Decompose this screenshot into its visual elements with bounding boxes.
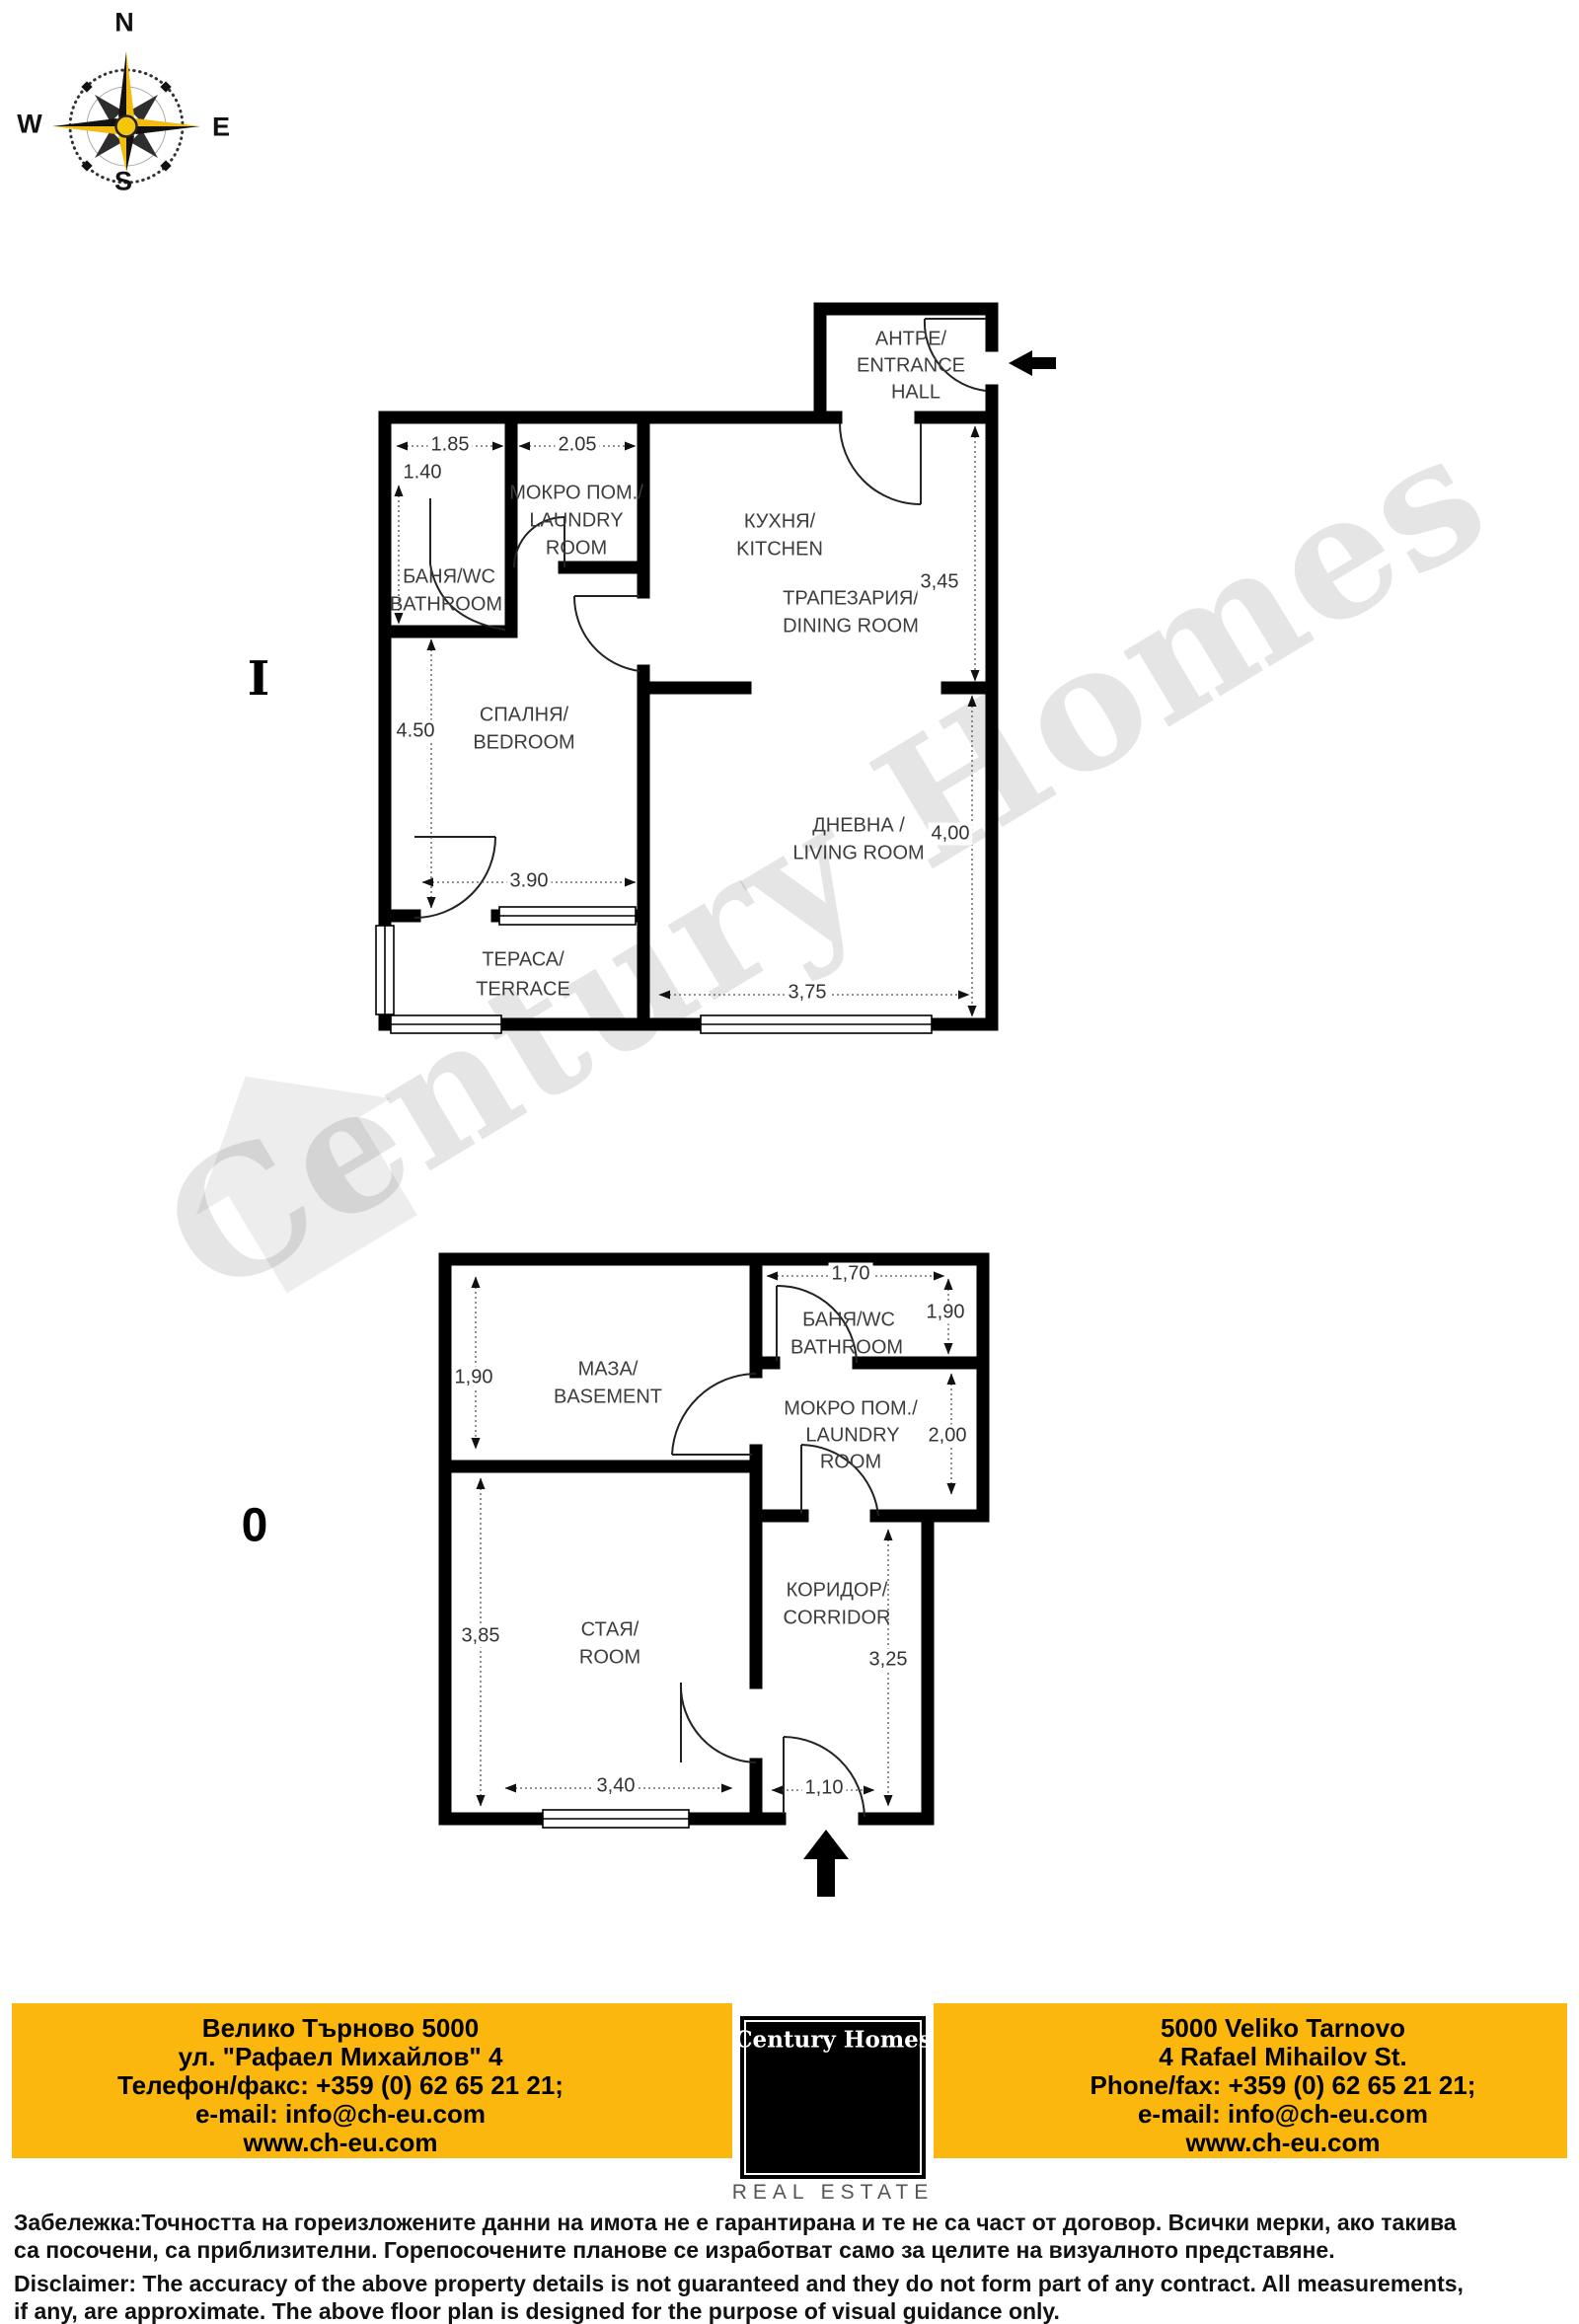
footer-address-bg: Велико Търново 5000 ул. "Рафаел Михайлов… xyxy=(25,2014,656,2157)
room-label-laundry0: ROOM xyxy=(820,1452,881,1474)
footer-website-bg: www.ch-eu.com xyxy=(25,2129,656,2157)
compass-w-label: W xyxy=(17,110,41,140)
dim-bedroom-width: 3.90 xyxy=(507,870,552,893)
footer-phone-en: Phone/fax: +359 (0) 62 65 21 21; xyxy=(1036,2071,1530,2100)
room-label-bathroom0: BATHROOM xyxy=(790,1337,903,1360)
plan1-windows xyxy=(376,907,932,1033)
dim-basement-height: 1,90 xyxy=(452,1367,496,1389)
plan1-walls xyxy=(385,309,992,1024)
footer-phone-bg: Телефон/факс: +359 (0) 62 65 21 21; xyxy=(25,2071,656,2100)
room-label-corridor: КОРИДОР/ xyxy=(787,1580,888,1603)
room-label-terrace: ТЕРАСА/ xyxy=(482,949,564,972)
footer-city-bg: Велико Търново 5000 xyxy=(25,2014,656,2043)
room-label-laundry0: LAUNDRY xyxy=(805,1425,899,1448)
room-label-entrance: HALL xyxy=(891,382,940,405)
plan0-windows xyxy=(543,1810,689,1828)
dim-laundry-width: 2.05 xyxy=(556,434,600,457)
room-label-terrace: TERRACE xyxy=(476,979,570,1002)
compass-n-label: N xyxy=(114,8,134,38)
floor-label-ground: 0 xyxy=(242,1499,268,1553)
room-label-kitchen: КУХНЯ/ xyxy=(744,511,815,534)
dim-entry-width: 1,10 xyxy=(802,1777,847,1800)
room-label-laundry: МОКРО ПОМ./ xyxy=(509,483,643,505)
disclaimer-en-line1: Disclaimer: The accuracy of the above pr… xyxy=(14,2270,1464,2297)
logo-subtitle: REAL ESTATE xyxy=(732,2181,934,2205)
footer-address-en: 5000 Veliko Tarnovo 4 Rafael Mihailov St… xyxy=(1036,2014,1530,2157)
logo-title: Century Homes xyxy=(734,2027,932,2054)
room-label-basement: МАЗА/ xyxy=(578,1359,639,1382)
dim-bathroom0-width: 1,70 xyxy=(829,1263,873,1286)
room-label-bathroom0: БАНЯ/WC xyxy=(802,1310,895,1332)
dim-kitchen-height: 3,45 xyxy=(918,571,962,594)
dim-room-width: 3,40 xyxy=(594,1775,639,1798)
room-label-room: ROOM xyxy=(579,1647,640,1670)
room-label-entrance: ENTRANCE xyxy=(857,355,965,378)
room-label-entrance: АНТРЕ/ xyxy=(875,329,946,351)
dim-room-height: 3,85 xyxy=(459,1625,503,1648)
dim-bathroom0-height: 1,90 xyxy=(924,1302,968,1324)
room-label-bedroom: СПАЛНЯ/ xyxy=(480,705,568,727)
compass-cardinal-points xyxy=(52,51,200,172)
floor-label-first: I xyxy=(248,651,269,707)
dim-bathroom-height: 1.40 xyxy=(401,462,445,485)
entrance-arrow-icon xyxy=(1009,350,1056,376)
footer-street-en: 4 Rafael Mihailov St. xyxy=(1036,2043,1530,2071)
room-label-living: ДНЕВНА / xyxy=(812,815,905,838)
room-label-kitchen: KITCHEN xyxy=(736,539,823,562)
room-label-laundry: LAUNDRY xyxy=(529,510,623,533)
room-label-laundry0: МОКРО ПОМ./ xyxy=(784,1398,918,1421)
room-label-room: СТАЯ/ xyxy=(581,1619,639,1642)
dim-bedroom-height: 4.50 xyxy=(394,720,438,743)
room-label-bathroom1: BATHROOM xyxy=(390,594,502,617)
dim-corridor-height: 3,25 xyxy=(866,1649,911,1672)
room-label-bedroom: BEDROOM xyxy=(473,732,574,755)
disclaimer-bulgarian: Забележка:Точността на гореизложените да… xyxy=(14,2209,1457,2264)
century-homes-logo: Century Homes xyxy=(740,2016,926,2179)
room-label-laundry: ROOM xyxy=(546,538,607,561)
disclaimer-en-line2: if any, are approximate. The above floor… xyxy=(14,2297,1464,2324)
room-label-bathroom1: БАНЯ/WC xyxy=(403,566,495,589)
compass-s-label: S xyxy=(114,167,132,197)
room-label-living: LIVING ROOM xyxy=(792,843,924,865)
floor-plan-page: Century Homes xyxy=(0,0,1579,2324)
floor-plan-canvas xyxy=(0,0,1579,2324)
compass-e-label: E xyxy=(212,112,230,143)
dim-laundry0-height: 2,00 xyxy=(926,1425,970,1448)
compass-rose-icon xyxy=(52,51,200,183)
footer-city-en: 5000 Veliko Tarnovo xyxy=(1036,2014,1530,2043)
room-label-dining: DINING ROOM xyxy=(783,616,919,638)
room-label-corridor: CORRIDOR xyxy=(784,1608,891,1630)
room-label-basement: BASEMENT xyxy=(554,1387,662,1409)
disclaimer-bg-line2: са посочени, са приблизителни. Горепосоч… xyxy=(14,2236,1457,2264)
footer-street-bg: ул. "Рафаел Михайлов" 4 xyxy=(25,2043,656,2071)
footer-email-en: e-mail: info@ch-eu.com xyxy=(1036,2100,1530,2129)
disclaimer-english: Disclaimer: The accuracy of the above pr… xyxy=(14,2270,1464,2324)
room-label-dining: ТРАПЕЗАРИЯ/ xyxy=(783,588,919,611)
footer-email-bg: e-mail: info@ch-eu.com xyxy=(25,2100,656,2129)
entry-arrow-icon xyxy=(803,1830,849,1897)
disclaimer-bg-line1: Забележка:Точността на гореизложените да… xyxy=(14,2209,1457,2236)
footer-website-en: www.ch-eu.com xyxy=(1036,2129,1530,2157)
dim-bathroom-width: 1.85 xyxy=(428,434,473,457)
watermark-house-icon xyxy=(148,1018,449,1312)
dim-living-width: 3,75 xyxy=(786,982,830,1005)
dim-living-height: 4,00 xyxy=(929,823,973,846)
